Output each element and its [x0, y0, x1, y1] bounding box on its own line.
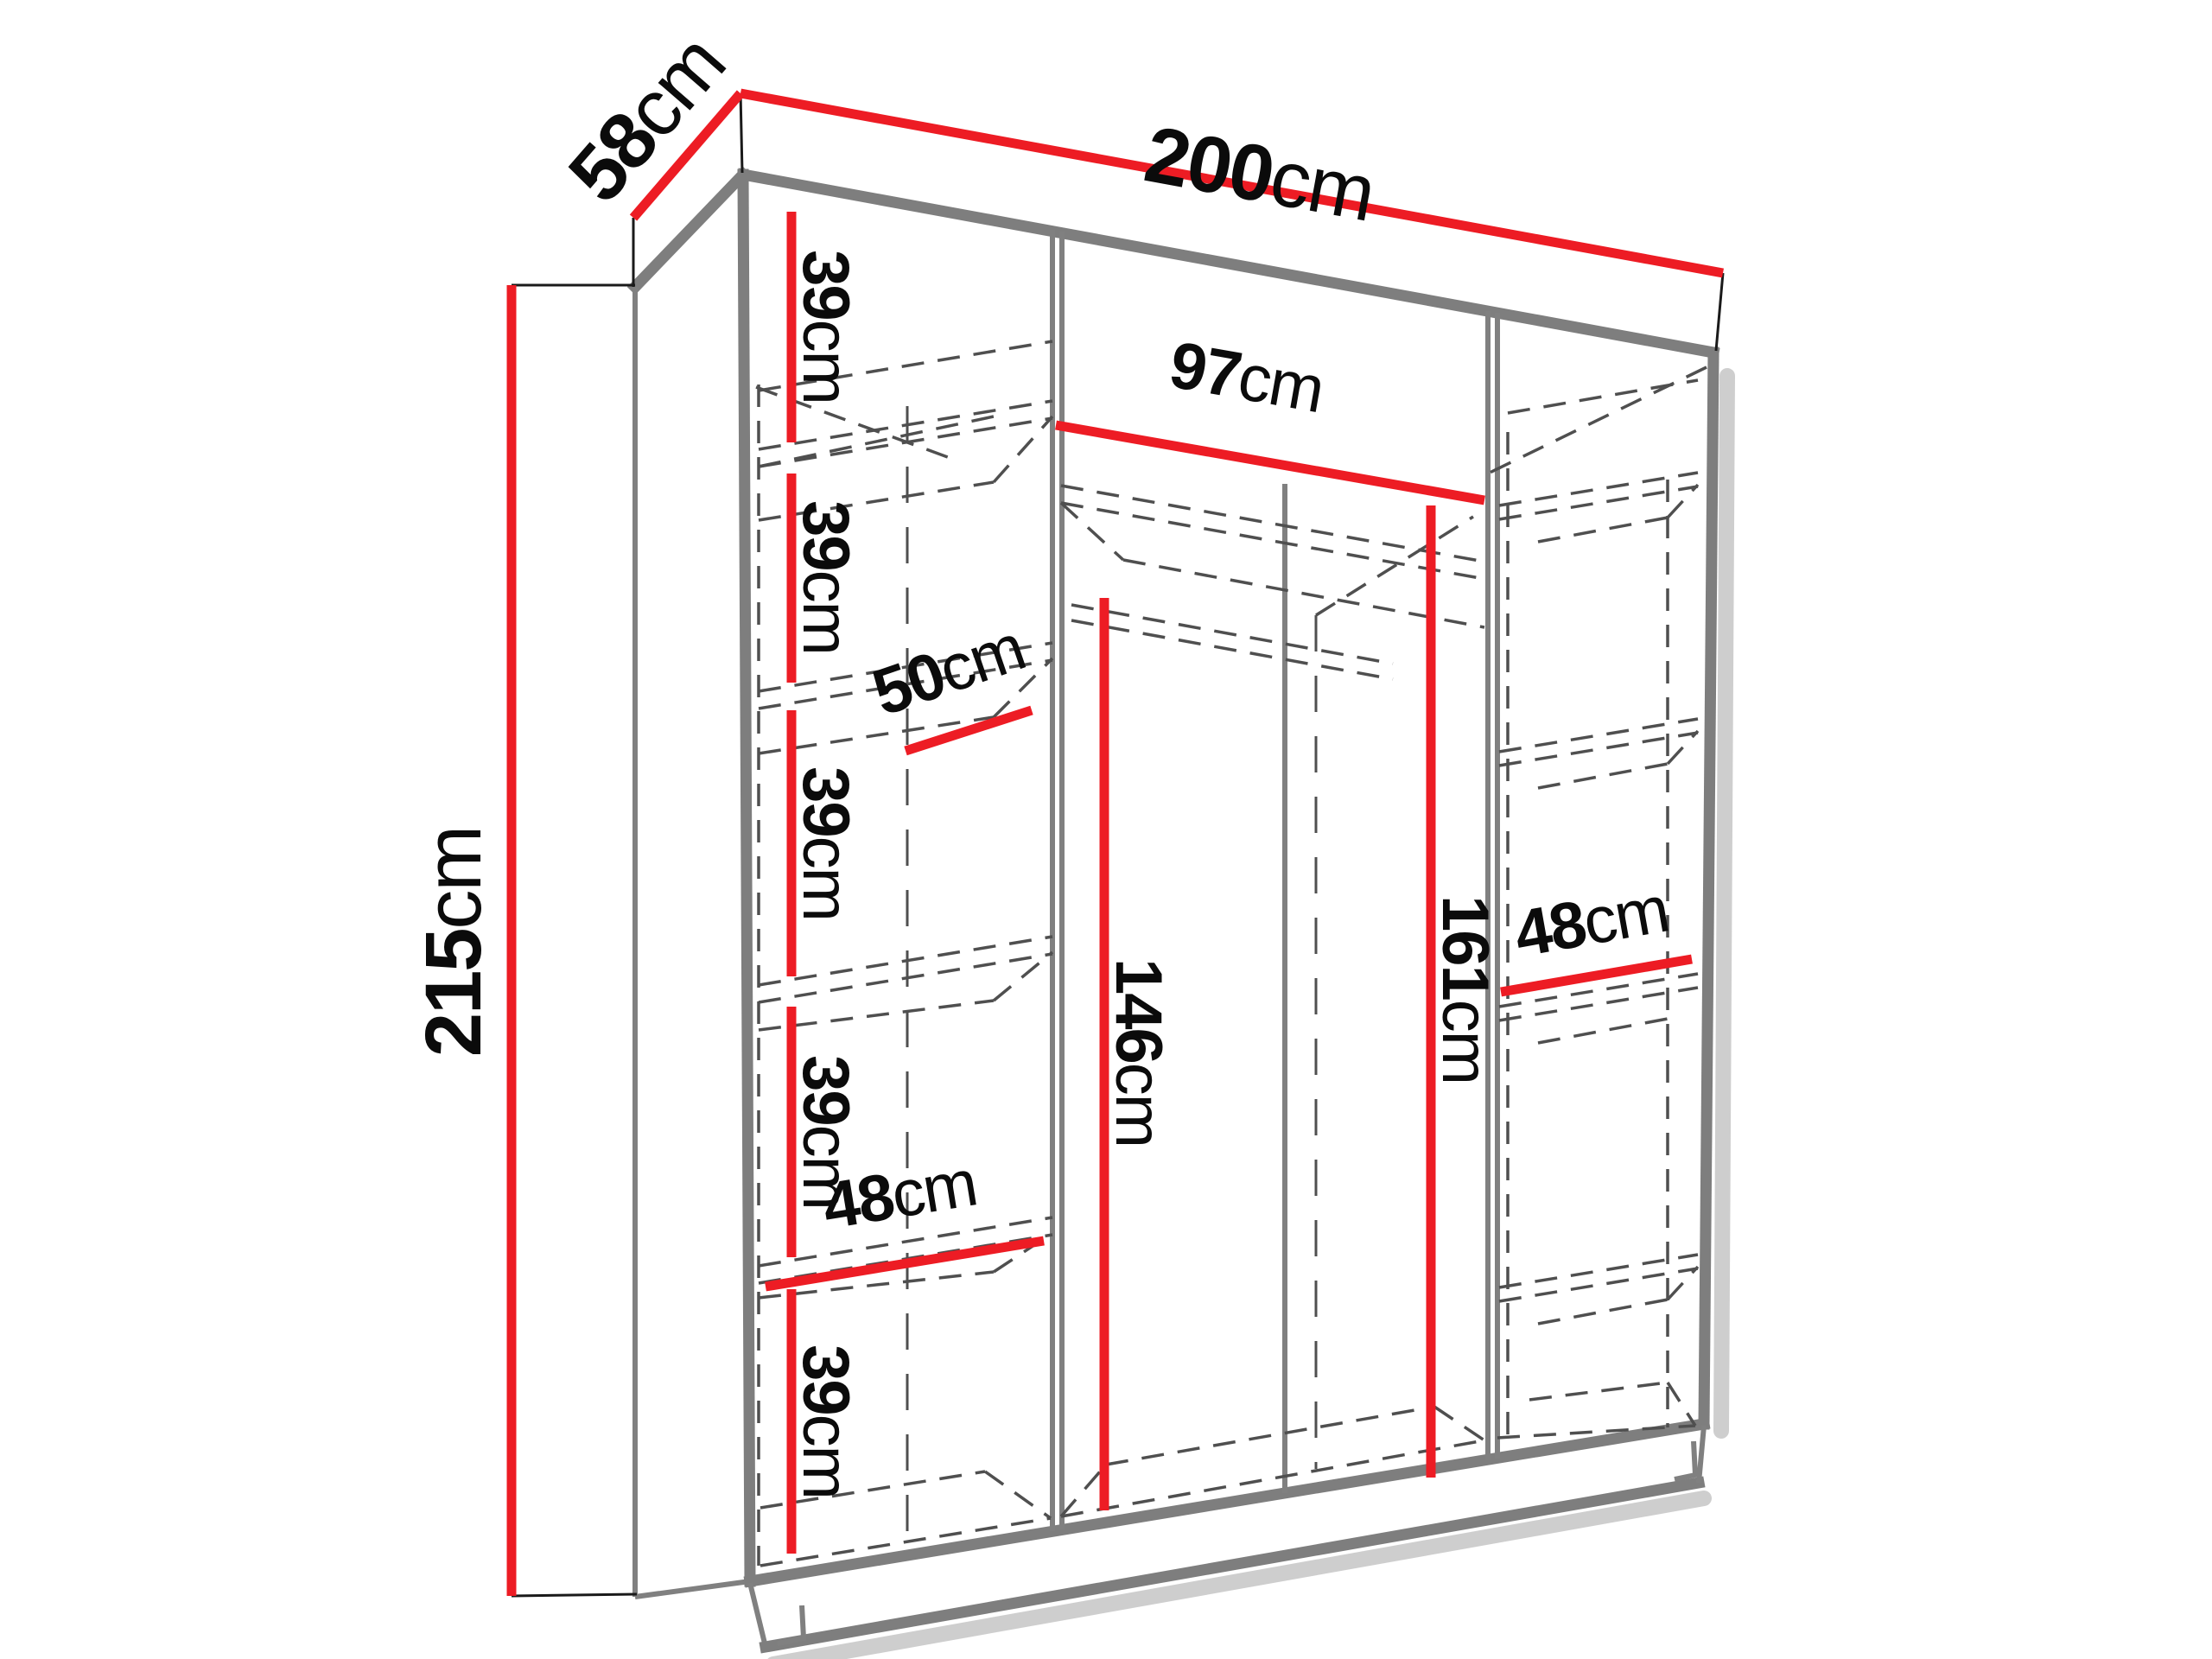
label-gap2: 39cm [789, 500, 862, 654]
dimension-labels: 58cm 200cm 215cm 39cm 39cm 39cm 39cm 39c… [410, 19, 1674, 1498]
left-front-edge [743, 175, 750, 1581]
wardrobe-dimension-diagram: 58cm 200cm 215cm 39cm 39cm 39cm 39cm 39c… [0, 0, 2212, 1659]
dim-line-mid-width-97 [1056, 425, 1484, 500]
ext-line [741, 93, 742, 173]
hanging-rod-line [1071, 605, 1393, 664]
left-panel-bottom-edge [635, 1581, 750, 1597]
hanging-rod-line [1071, 620, 1393, 679]
ext-line [512, 1594, 637, 1596]
floor-dashes [760, 1382, 1695, 1566]
label-height: 215cm [410, 827, 498, 1057]
shadow-bottom [773, 1498, 1704, 1659]
shadow-right [1721, 376, 1727, 1431]
ext-line [1716, 273, 1723, 351]
label-gap3: 39cm [789, 766, 862, 920]
right-front-edge [1704, 353, 1713, 1424]
label-gap5: 39cm [789, 1344, 862, 1498]
label-right-width: 48cm [1510, 873, 1674, 972]
diagram-stage: 58cm 200cm 215cm 39cm 39cm 39cm 39cm 39c… [0, 0, 2212, 1659]
label-mid-height: 161cm [1428, 895, 1502, 1084]
label-rod-height: 146cm [1102, 958, 1175, 1147]
label-width: 200cm [1139, 110, 1381, 238]
label-shelf-depth: 50cm [864, 611, 1033, 730]
label-mid-width: 97cm [1164, 328, 1328, 428]
middle-top-shelf-and-rod [1061, 486, 1484, 679]
plinth-left-edge [750, 1583, 766, 1647]
plinth-right-edge [1699, 1426, 1704, 1483]
dim-line-left-width-48 [766, 1241, 1044, 1287]
plinth-right-foot [1675, 1441, 1695, 1479]
label-gap1: 39cm [789, 250, 862, 404]
